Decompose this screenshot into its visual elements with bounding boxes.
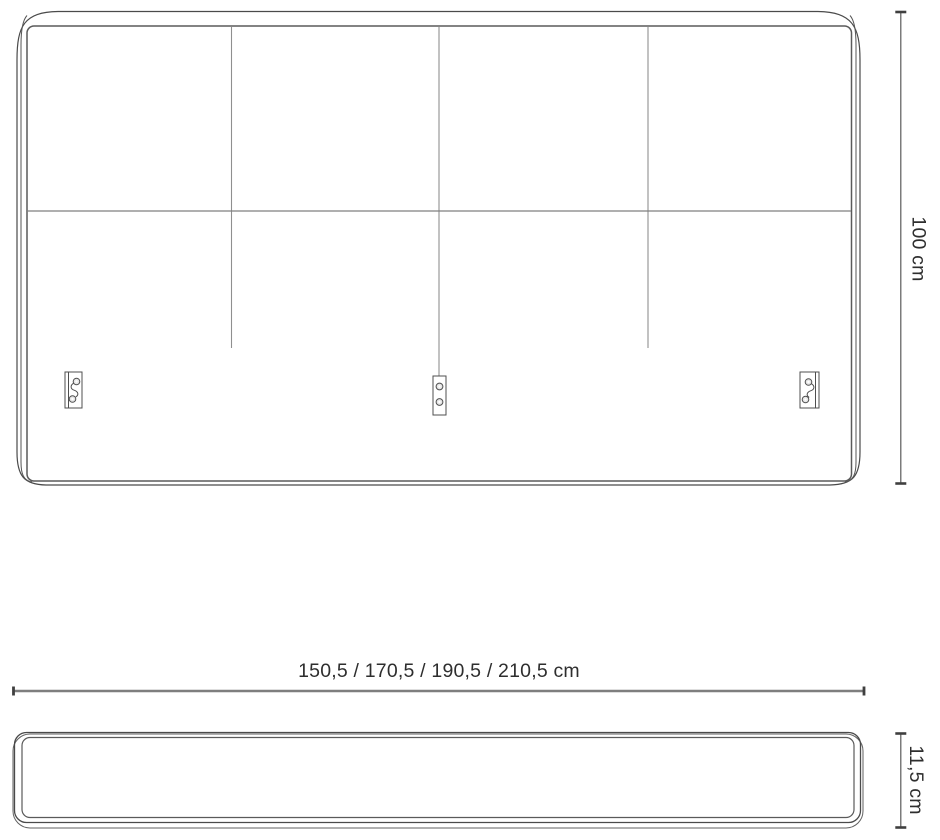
drawing-canvas — [0, 0, 940, 840]
screw-plate-bracket-center-icon — [433, 376, 446, 415]
upholstery-seam-grid — [27, 27, 851, 376]
keyhole-bracket-left-icon — [65, 372, 82, 408]
side-view-bulge-contour — [13, 734, 863, 828]
side-view-outer-contour — [15, 733, 861, 823]
width-dimension-label: 150,5 / 170,5 / 190,5 / 210,5 cm — [219, 659, 659, 683]
side-view-inner-face — [22, 738, 854, 818]
fabric-edge-right — [845, 16, 856, 483]
keyhole-bracket-right-icon — [800, 372, 819, 408]
headboard-front-view — [17, 12, 860, 486]
height-dimension-label: 100 cm — [907, 189, 931, 310]
headboard-dimension-drawing: 150,5 / 170,5 / 190,5 / 210,5 cm 100 cm … — [0, 0, 940, 840]
depth-dimension-label: 11,5 cm — [904, 720, 928, 840]
headboard-side-view — [13, 733, 863, 829]
height-dimension — [895, 12, 906, 484]
width-dimension — [13, 687, 865, 696]
